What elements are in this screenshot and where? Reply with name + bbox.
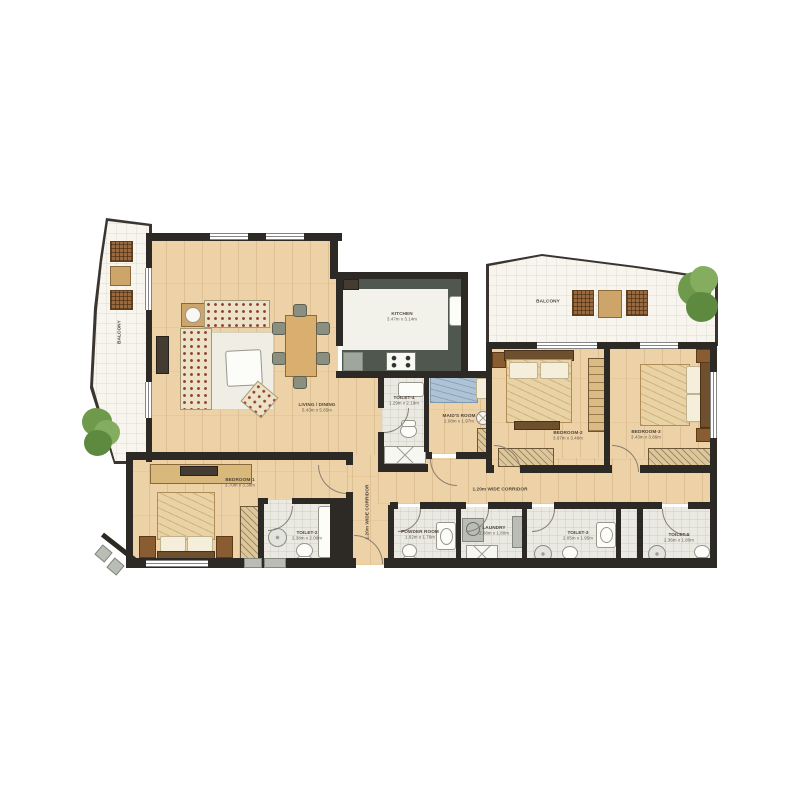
- room-name: BALCONY: [117, 320, 123, 344]
- room-dimensions: 2.38m x 2.08m: [292, 536, 322, 542]
- label-living-dining: LIVING / DINING 5.43m x 5.65m: [298, 402, 335, 414]
- wall-bottom-outer: [384, 558, 717, 568]
- wall-toilet4-left: [378, 378, 384, 408]
- tv-console: [156, 336, 169, 374]
- window: [266, 233, 304, 240]
- label-corridor-vertical: 1.20m WIDE CORRIDOR: [365, 484, 371, 539]
- balcony-side-table: [110, 266, 131, 286]
- dining-chair: [316, 352, 330, 365]
- dining-chair: [293, 304, 307, 317]
- wall-kitchen-left: [336, 272, 343, 346]
- label-balcony-left: BALCONY: [117, 320, 123, 344]
- room-dimensions: 2.05m x 1.95m: [563, 536, 593, 542]
- facade-column: [94, 544, 112, 562]
- label-powder-room: POWDER ROOM 1.62m x 1.76m: [401, 529, 439, 541]
- dining-chair: [293, 376, 307, 389]
- wall-powder-left: [388, 505, 394, 564]
- pillow-bedroom1: [160, 536, 186, 552]
- sofa-top-section: [204, 300, 270, 328]
- threshold: [244, 558, 262, 568]
- label-laundry: LAUNDRY 2.08m x 1.80m: [479, 525, 509, 537]
- nightstand-bedroom1: [139, 536, 156, 558]
- kitchen-fridge: [343, 279, 359, 290]
- wall-toilet2-left: [258, 498, 264, 564]
- wall-niche-right: [637, 505, 643, 564]
- corridor-name: 1.20m WIDE CORRIDOR: [472, 487, 527, 493]
- room-dimensions: 1.62m x 1.76m: [401, 535, 439, 541]
- wall-bottomrooms-top: [390, 502, 398, 509]
- label-corridor-horizontal: 1.20m WIDE CORRIDOR: [472, 487, 527, 493]
- dining-table: [285, 315, 317, 377]
- pillow-bedroom3: [686, 394, 701, 422]
- window: [640, 342, 678, 349]
- label-balcony-right: BALCONY: [536, 299, 560, 305]
- wall-kitchen-top: [336, 272, 468, 279]
- kitchen-mat: [343, 352, 363, 371]
- window: [537, 342, 597, 349]
- wall-toilet4-left: [378, 432, 384, 464]
- facade-column: [106, 557, 124, 575]
- window: [146, 560, 208, 567]
- dining-chair: [272, 322, 286, 335]
- dining-chair: [316, 322, 330, 335]
- window: [210, 233, 248, 240]
- shower-drain-toilet2: [268, 528, 287, 547]
- label-toilet5: TOILET-5 2.36m x 1.80m: [664, 532, 694, 544]
- room-dimensions: 2.08m x 1.97m: [443, 419, 476, 425]
- wall-bedrooms-bottom: [520, 465, 612, 473]
- wall-bedroom2-left: [486, 342, 492, 465]
- sink-toilet3: [600, 527, 613, 543]
- wall-bedrooms-bottom: [486, 465, 494, 473]
- wall-living-bedroom1-divider: [126, 452, 352, 460]
- room-dimensions: 2.36m x 1.80m: [664, 538, 694, 544]
- bush-plant: [84, 430, 112, 456]
- label-maids-room: MAID'S ROOM 2.08m x 1.97m: [443, 413, 476, 425]
- wall-kitchen-bottom: [336, 371, 486, 378]
- lamp-icon: [185, 307, 201, 323]
- room-name: BALCONY: [536, 299, 560, 305]
- bed-bedroom3: [640, 364, 690, 426]
- sofa-left-section: [180, 328, 212, 410]
- label-toilet2: TOILET-2 2.38m x 2.08m: [292, 530, 322, 542]
- balcony-wicker-chair: [572, 290, 594, 316]
- wall-maid-bottom: [426, 452, 432, 459]
- balcony-table: [598, 290, 622, 318]
- wall-bedrooms-top: [486, 342, 716, 349]
- wall-toilet2-right: [330, 498, 346, 564]
- wall-kitchen-right: [461, 272, 468, 378]
- label-bedroom3: BEDROOM-3 3.43m x 3.86m: [631, 429, 661, 441]
- label-bedroom1: BEDROOM-1 3.70m x 3.38m: [225, 477, 255, 489]
- pillow-bedroom3: [686, 366, 701, 394]
- window: [145, 382, 152, 418]
- room-dimensions: 1.29m x 2.19m: [389, 401, 419, 407]
- room-dimensions: 2.08m x 1.80m: [479, 531, 509, 537]
- wall-powder-laundry-divider: [456, 505, 461, 564]
- room-dimensions: 3.67m x 3.48m: [553, 436, 583, 442]
- room-dimensions: 3.43m x 3.86m: [631, 435, 661, 441]
- kitchen-stove: [386, 352, 416, 371]
- wall-toilet4-maid-divider: [424, 374, 429, 452]
- label-toilet3: TOILET-3 2.05m x 1.95m: [563, 530, 593, 542]
- bed-bedroom1: [157, 492, 215, 540]
- nightstand-bedroom1: [216, 536, 233, 558]
- balcony-wicker-seat: [110, 241, 133, 262]
- room-dimensions: 3.70m x 3.38m: [225, 483, 255, 489]
- maids-bed: [430, 376, 478, 403]
- label-toilet4: TOILET-4 1.29m x 2.19m: [389, 395, 419, 407]
- balcony-wicker-seat: [110, 290, 133, 310]
- wall-corridor-left: [346, 492, 353, 564]
- pillow-bedroom2: [509, 362, 538, 379]
- wall-bottomrooms-top: [554, 502, 662, 509]
- wall-toilet2-top: [292, 498, 335, 504]
- wall-bottomrooms-top: [688, 502, 716, 509]
- room-dimensions: 5.43m x 5.65m: [298, 408, 335, 414]
- tv-bedroom1: [180, 466, 218, 476]
- label-kitchen: KITCHEN 3.47m x 3.14m: [387, 311, 417, 323]
- wall-toilet2-top: [258, 498, 268, 504]
- wall-bedrooms-bottom: [640, 465, 710, 473]
- window: [145, 268, 152, 310]
- wall-laundry-toilet3-divider: [522, 505, 527, 564]
- wall-toilet3-right: [616, 505, 621, 564]
- dining-chair: [272, 352, 286, 365]
- window: [710, 372, 717, 438]
- room-dimensions: 3.47m x 3.14m: [387, 317, 417, 323]
- floor-living-strip: [338, 371, 382, 460]
- sink-powder-room: [440, 528, 453, 545]
- kitchen-counter-top: [342, 278, 462, 289]
- corridor-name: 1.20m WIDE CORRIDOR: [365, 484, 371, 539]
- balcony-wicker-chair: [626, 290, 648, 316]
- wall-corridor-left: [346, 452, 353, 465]
- shower-tray-toilet4: [384, 446, 426, 464]
- pillow-bedroom2: [540, 362, 569, 379]
- threshold: [264, 558, 286, 568]
- pillow-bedroom1: [187, 536, 213, 552]
- bed-bench-bedroom2: [514, 421, 560, 430]
- wall-bedroom2-3-divider: [604, 342, 610, 473]
- wall-toilet4-bottom: [378, 464, 428, 472]
- label-bedroom2: BEDROOM-2 3.67m x 3.48m: [553, 430, 583, 442]
- floor-plan: BALCONY BALCONY LIVING / DINING 5.43m x …: [0, 0, 800, 800]
